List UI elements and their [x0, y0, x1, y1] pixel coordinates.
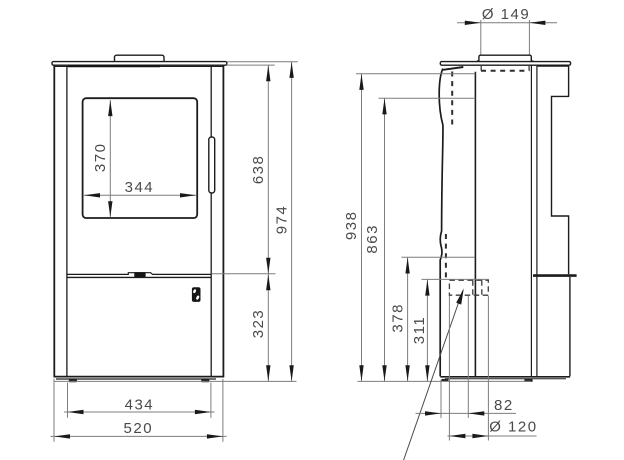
svg-text:Ø 120: Ø 120: [489, 418, 537, 435]
svg-text:863: 863: [364, 224, 381, 254]
svg-text:311: 311: [411, 316, 428, 344]
svg-text:Ø 149: Ø 149: [482, 6, 530, 23]
svg-text:378: 378: [389, 303, 406, 333]
svg-text:974: 974: [273, 205, 290, 235]
svg-text:938: 938: [343, 211, 360, 241]
svg-text:638: 638: [250, 155, 267, 185]
svg-text:344: 344: [125, 179, 155, 196]
svg-text:323: 323: [250, 309, 267, 339]
svg-text:82: 82: [494, 397, 514, 414]
svg-text:370: 370: [92, 143, 109, 173]
svg-text:520: 520: [124, 420, 154, 437]
svg-text:434: 434: [125, 397, 155, 414]
